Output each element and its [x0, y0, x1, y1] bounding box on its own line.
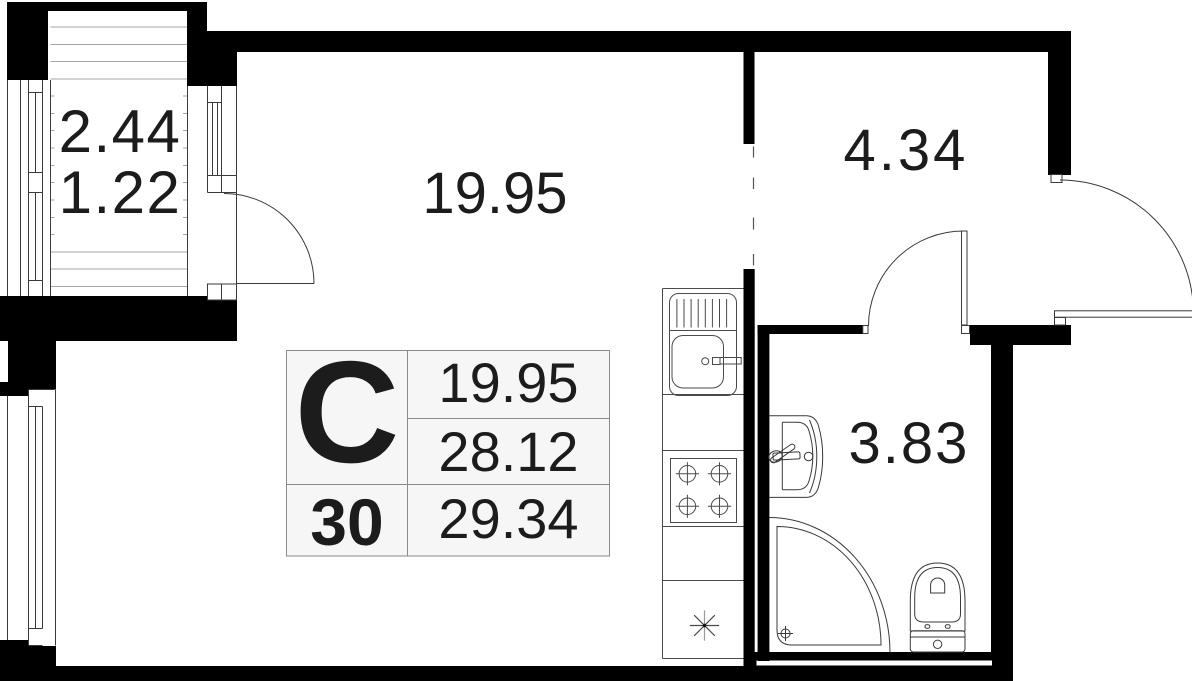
- svg-text:3.83: 3.83: [849, 411, 970, 476]
- svg-text:29.34: 29.34: [438, 487, 578, 550]
- svg-text:С: С: [295, 331, 400, 493]
- svg-text:1.22: 1.22: [59, 159, 182, 226]
- svg-text:2.44: 2.44: [59, 98, 182, 165]
- svg-text:4.34: 4.34: [844, 118, 969, 183]
- svg-text:30: 30: [310, 485, 383, 559]
- svg-text:28.12: 28.12: [438, 420, 578, 483]
- svg-text:19.95: 19.95: [438, 351, 578, 414]
- svg-text:19.95: 19.95: [422, 161, 567, 226]
